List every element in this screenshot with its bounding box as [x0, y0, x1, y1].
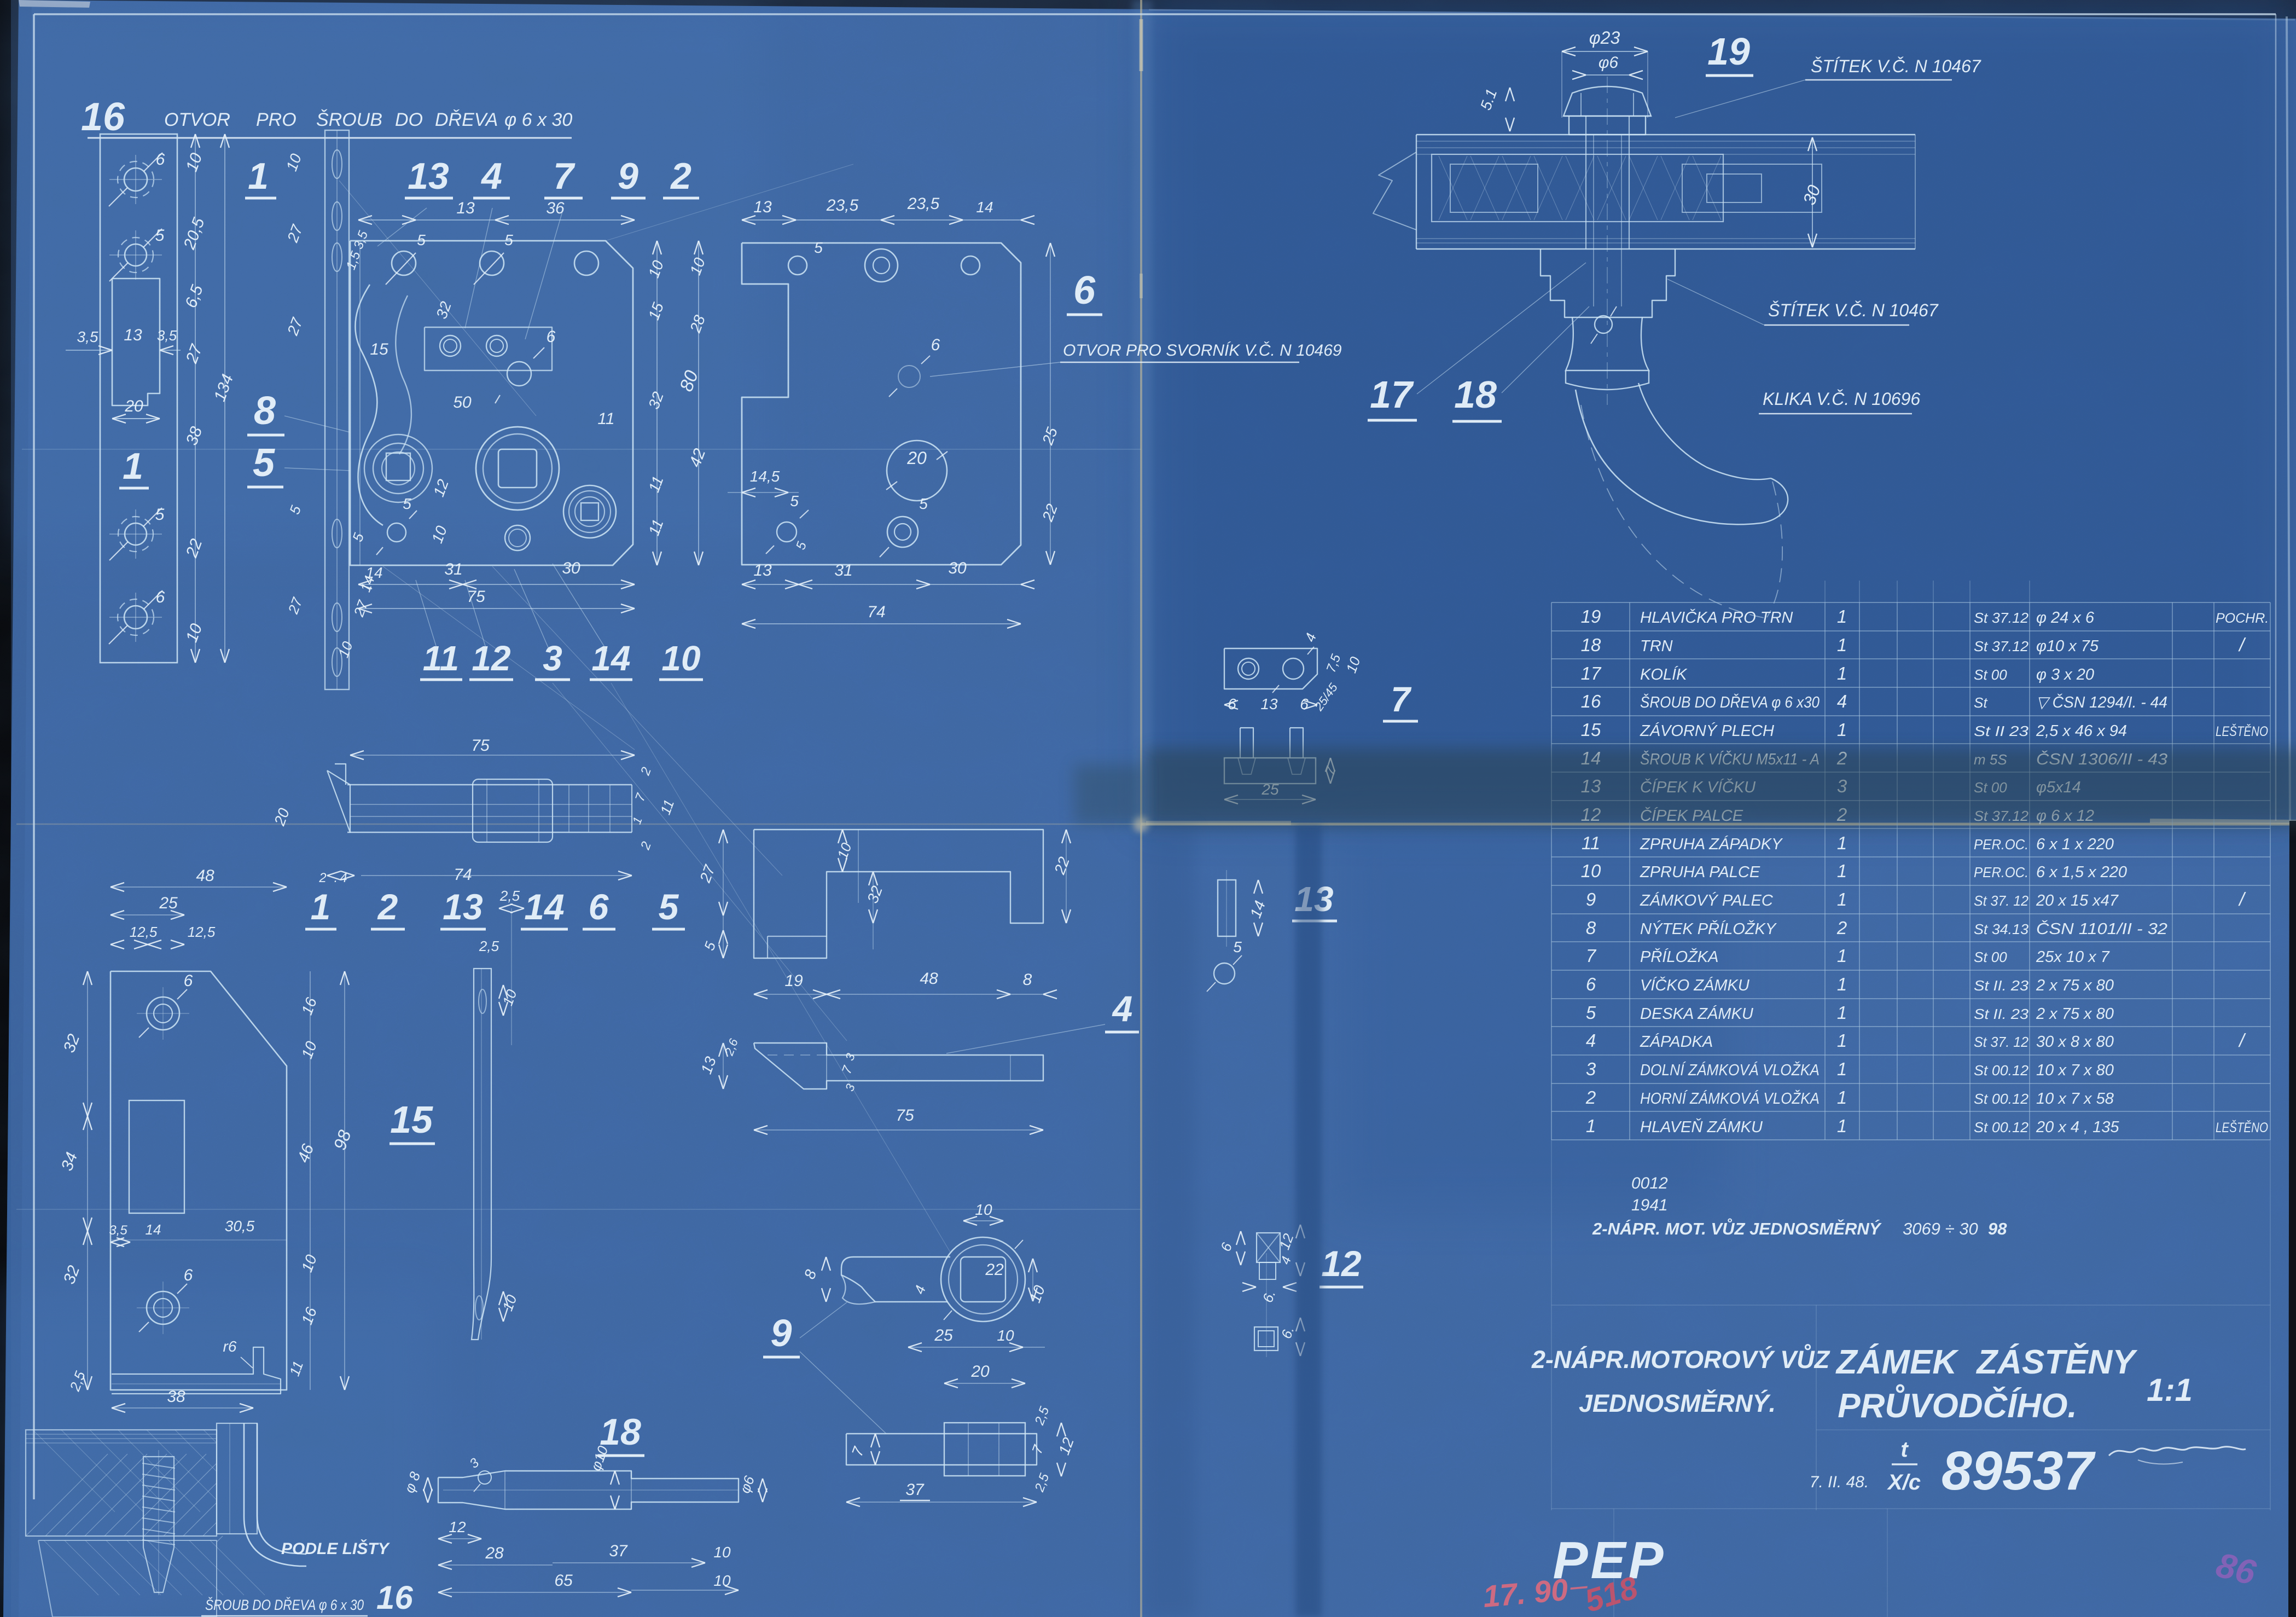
svg-text:6: 6	[156, 150, 165, 169]
svg-text:25: 25	[934, 1326, 953, 1344]
svg-text:2: 2	[1836, 918, 1847, 938]
svg-text:17: 17	[1581, 663, 1602, 683]
svg-text:37: 37	[609, 1542, 628, 1560]
svg-text:φ 6 x 30: φ 6 x 30	[504, 109, 572, 130]
svg-text:4: 4	[480, 155, 502, 197]
svg-text:20: 20	[970, 1363, 990, 1381]
svg-text:DŘEVA: DŘEVA	[435, 109, 498, 130]
svg-text:37: 37	[905, 1481, 925, 1499]
svg-text:St II. 23: St II. 23	[1974, 977, 2029, 994]
svg-text:12: 12	[449, 1519, 466, 1535]
svg-text:10: 10	[713, 1544, 731, 1561]
svg-text:St 34.13: St 34.13	[1974, 921, 2029, 937]
svg-text:2: 2	[1585, 1087, 1596, 1108]
svg-text:30: 30	[562, 559, 580, 577]
svg-text:1: 1	[1837, 1002, 1847, 1023]
svg-text:14: 14	[524, 886, 564, 927]
svg-text:2,5: 2,5	[499, 888, 520, 904]
svg-text:5: 5	[1233, 938, 1242, 955]
svg-text:5: 5	[403, 495, 411, 512]
svg-text:t: t	[1900, 1438, 1909, 1462]
svg-text:5: 5	[504, 231, 513, 248]
svg-text:φ 24 x 6: φ 24 x 6	[2036, 609, 2095, 627]
svg-text:3,5: 3,5	[157, 327, 177, 344]
svg-text:10 x 7 x 58: 10 x 7 x 58	[2036, 1090, 2114, 1108]
svg-text:5: 5	[155, 506, 165, 524]
svg-text:1: 1	[311, 886, 331, 927]
svg-text:2-NÁPR.MOTOROVÝ VŮZ: 2-NÁPR.MOTOROVÝ VŮZ	[1531, 1344, 1830, 1373]
svg-text:8: 8	[1023, 971, 1032, 989]
svg-text:6: 6	[589, 886, 609, 927]
svg-text:5: 5	[253, 441, 275, 485]
svg-text:18: 18	[1581, 635, 1601, 655]
svg-text:St II 23: St II 23	[1974, 723, 2029, 739]
svg-text:18: 18	[1454, 373, 1497, 416]
svg-text:4: 4	[1586, 1030, 1596, 1051]
svg-text:9: 9	[1586, 889, 1596, 909]
svg-text:1941: 1941	[1631, 1196, 1668, 1214]
svg-text:8: 8	[1586, 918, 1596, 938]
svg-text:1: 1	[1837, 635, 1847, 655]
svg-text:5: 5	[659, 886, 679, 927]
svg-text:7. II. 48.: 7. II. 48.	[1810, 1473, 1869, 1491]
svg-text:1: 1	[1837, 1087, 1847, 1108]
svg-text:5: 5	[155, 227, 165, 245]
svg-text:2: 2	[377, 886, 398, 927]
svg-text:25: 25	[159, 894, 178, 912]
svg-text:3069 ÷ 30: 3069 ÷ 30	[1903, 1219, 1978, 1238]
svg-text:19: 19	[1707, 30, 1750, 73]
svg-text:38: 38	[167, 1388, 185, 1406]
svg-text:10: 10	[997, 1327, 1014, 1344]
svg-text:50: 50	[453, 393, 472, 412]
svg-text:1: 1	[1837, 720, 1847, 740]
svg-text:St 00.12: St 00.12	[1974, 1119, 2029, 1135]
svg-text:18: 18	[600, 1411, 641, 1453]
svg-text:13: 13	[456, 199, 475, 217]
svg-text:ZÁPADKA: ZÁPADKA	[1640, 1033, 1713, 1051]
svg-text:12,5: 12,5	[130, 924, 158, 940]
svg-text:98: 98	[1988, 1219, 2007, 1238]
svg-text:VÍČKO ZÁMKU: VÍČKO ZÁMKU	[1640, 976, 1750, 994]
svg-text:31: 31	[834, 561, 852, 579]
svg-text:PER.OC.: PER.OC.	[1974, 864, 2028, 880]
svg-text:1: 1	[1837, 1030, 1847, 1051]
svg-text:48: 48	[920, 970, 938, 988]
svg-text:65: 65	[554, 1572, 573, 1590]
svg-text:6: 6	[184, 1266, 193, 1284]
svg-text:2: 2	[318, 871, 326, 885]
svg-text:2: 2	[670, 155, 691, 197]
svg-text:11: 11	[1582, 833, 1600, 853]
svg-text:ZÁVORNÝ PLECH: ZÁVORNÝ PLECH	[1640, 722, 1774, 740]
svg-text:13: 13	[753, 561, 772, 579]
svg-text:ČSN 1101/II - 32: ČSN 1101/II - 32	[2036, 919, 2167, 938]
svg-text:St II. 23: St II. 23	[1974, 1006, 2029, 1022]
svg-text:1: 1	[1837, 606, 1847, 627]
svg-text:2 x 75 x 80: 2 x 75 x 80	[2036, 1005, 2114, 1023]
svg-text:6 x 1,5 x 220: 6 x 1,5 x 220	[2036, 863, 2127, 881]
svg-text:St 37.12: St 37.12	[1974, 638, 2029, 654]
svg-text:St 37. 12: St 37. 12	[1974, 892, 2029, 909]
svg-text:ZÁMEK: ZÁMEK	[1835, 1343, 1960, 1381]
svg-text:3: 3	[543, 639, 562, 678]
svg-text:TRN: TRN	[1640, 637, 1673, 655]
svg-text:22: 22	[985, 1261, 1004, 1279]
svg-text:15: 15	[370, 340, 388, 358]
svg-text:OTVOR PRO SVORNÍK V.Č. N 10469: OTVOR PRO SVORNÍK V.Č. N 10469	[1063, 341, 1342, 360]
svg-text:ZPRUHA ZÁPADKY: ZPRUHA ZÁPADKY	[1640, 835, 1783, 853]
svg-text:75: 75	[467, 588, 485, 606]
svg-text:15: 15	[390, 1098, 433, 1141]
svg-text:1: 1	[1837, 861, 1847, 881]
svg-text:2,5: 2,5	[479, 938, 499, 954]
svg-text:HORNÍ ZÁMKOVÁ VLOŽKA: HORNÍ ZÁMKOVÁ VLOŽKA	[1640, 1089, 1820, 1108]
svg-text:74: 74	[454, 866, 472, 884]
svg-text:ZPRUHA PALCE: ZPRUHA PALCE	[1640, 863, 1760, 881]
svg-text:PRŮVODČÍHO.: PRŮVODČÍHO.	[1838, 1385, 2077, 1425]
svg-text:5: 5	[814, 239, 823, 256]
svg-text:14,5: 14,5	[750, 468, 780, 485]
svg-text:OTVOR: OTVOR	[164, 109, 230, 130]
svg-text:LEŠTĚNO: LEŠTĚNO	[2216, 1120, 2268, 1135]
svg-text:DESKA ZÁMKU: DESKA ZÁMKU	[1640, 1005, 1754, 1023]
svg-text:10: 10	[975, 1201, 992, 1218]
svg-text:13: 13	[408, 155, 449, 197]
svg-text:LEŠTĚNO: LEŠTĚNO	[2216, 723, 2268, 739]
svg-text:75: 75	[471, 737, 490, 755]
svg-text:X/c: X/c	[1887, 1470, 1921, 1494]
svg-text:▽ ČSN 1294/I. - 44: ▽ ČSN 1294/I. - 44	[2036, 693, 2167, 711]
svg-text:28: 28	[485, 1544, 504, 1562]
svg-text:r6: r6	[223, 1338, 237, 1355]
svg-text:PER.OC.: PER.OC.	[1974, 836, 2028, 853]
svg-text:23,5: 23,5	[826, 196, 859, 215]
svg-text:12: 12	[472, 639, 510, 678]
svg-text:10 x 7 x 80: 10 x 7 x 80	[2036, 1062, 2114, 1079]
svg-text:74: 74	[867, 603, 885, 621]
svg-text:1:1: 1:1	[2147, 1372, 2193, 1408]
svg-text:16: 16	[81, 95, 125, 139]
svg-text:ŠTÍTEK V.Č. N 10467: ŠTÍTEK V.Č. N 10467	[1811, 56, 1981, 76]
svg-text:1: 1	[1837, 889, 1847, 909]
svg-text:HLAVEŇ ZÁMKU: HLAVEŇ ZÁMKU	[1640, 1118, 1763, 1136]
svg-text:St 00.12: St 00.12	[1974, 1091, 2029, 1107]
svg-text:PODLE LIŠTY: PODLE LIŠTY	[281, 1539, 391, 1558]
svg-text:23,5: 23,5	[907, 195, 940, 213]
svg-text:1: 1	[1837, 1059, 1847, 1079]
svg-text:30: 30	[948, 559, 967, 577]
svg-text:NÝTEK PŘÍLOŽKY: NÝTEK PŘÍLOŽKY	[1640, 920, 1777, 938]
svg-text:St 00: St 00	[1974, 949, 2007, 965]
svg-text:0012: 0012	[1631, 1174, 1668, 1192]
svg-text:31: 31	[444, 560, 462, 578]
svg-text:1: 1	[123, 445, 143, 487]
svg-text:PRO: PRO	[256, 109, 297, 130]
svg-text:19: 19	[1581, 606, 1601, 627]
svg-text:16: 16	[376, 1579, 413, 1616]
svg-text:11: 11	[423, 639, 459, 678]
svg-text:ŠROUB DO DŘEVA φ 6 x 30: ŠROUB DO DŘEVA φ 6 x 30	[205, 1596, 364, 1613]
svg-text:POCHR.: POCHR.	[2216, 611, 2269, 626]
svg-text:8: 8	[254, 389, 276, 433]
svg-text:10: 10	[661, 639, 700, 678]
svg-text:20: 20	[906, 448, 927, 468]
svg-text:9: 9	[618, 155, 638, 197]
svg-text:φ10 x 75: φ10 x 75	[2036, 637, 2099, 655]
svg-text:1: 1	[1586, 1116, 1596, 1136]
svg-text:St 00: St 00	[1974, 666, 2007, 683]
svg-text:7: 7	[553, 155, 576, 197]
svg-text:ŠROUB DO DŘEVA φ 6 x30: ŠROUB DO DŘEVA φ 6 x30	[1640, 693, 1820, 711]
svg-text:13: 13	[1260, 696, 1278, 712]
svg-text:75: 75	[896, 1106, 914, 1125]
svg-text:16: 16	[1581, 691, 1601, 711]
svg-text:6: 6	[1586, 974, 1596, 994]
svg-text:1: 1	[248, 155, 269, 197]
svg-text:9: 9	[771, 1312, 792, 1354]
svg-text:89537: 89537	[1942, 1440, 2096, 1502]
svg-text:1: 1	[1837, 833, 1847, 853]
svg-text:6: 6	[931, 336, 940, 354]
svg-text:6: 6	[1300, 696, 1309, 712]
svg-text:6: 6	[1073, 269, 1096, 312]
svg-text:1: 1	[1837, 946, 1847, 966]
svg-text:St: St	[1974, 694, 1988, 711]
svg-text:ZÁMKOVÝ PALEC: ZÁMKOVÝ PALEC	[1640, 891, 1774, 909]
svg-text:ŠROUB: ŠROUB	[316, 109, 382, 130]
svg-text:1: 1	[1837, 974, 1847, 994]
svg-text:φ 3 x 20: φ 3 x 20	[2036, 666, 2094, 683]
svg-text:17: 17	[1370, 373, 1414, 416]
svg-text:20 x 4 , 135: 20 x 4 , 135	[2036, 1118, 2119, 1136]
svg-text:3,5: 3,5	[109, 1223, 127, 1238]
svg-text:1: 1	[1837, 1116, 1847, 1136]
svg-text:DOLNÍ ZÁMKOVÁ VLOŽKA: DOLNÍ ZÁMKOVÁ VLOŽKA	[1640, 1061, 1820, 1079]
svg-text:14: 14	[976, 199, 993, 216]
svg-text:7: 7	[1391, 680, 1412, 719]
svg-text:JEDNOSMĚRNÝ.: JEDNOSMĚRNÝ.	[1579, 1389, 1776, 1417]
svg-text:6: 6	[184, 972, 193, 990]
svg-text:HLAVIČKA PRO TRN: HLAVIČKA PRO TRN	[1640, 608, 1793, 627]
svg-text:13: 13	[124, 326, 142, 344]
svg-text:30,5: 30,5	[225, 1218, 255, 1235]
svg-text:30 x 8 x 80: 30 x 8 x 80	[2036, 1033, 2114, 1051]
svg-text:ZÁSTĚNY: ZÁSTĚNY	[1975, 1343, 2138, 1381]
svg-text:14: 14	[591, 639, 630, 678]
svg-text:St 00.12: St 00.12	[1974, 1062, 2029, 1079]
svg-text:19: 19	[784, 972, 803, 990]
svg-text:5: 5	[919, 495, 928, 512]
svg-text:4: 4	[1837, 691, 1847, 711]
svg-text:3: 3	[1586, 1059, 1596, 1079]
svg-text:25x 10 x 7: 25x 10 x 7	[2036, 948, 2111, 966]
svg-text:14: 14	[146, 1221, 161, 1238]
svg-text:5: 5	[417, 231, 426, 248]
svg-text:3,5: 3,5	[77, 328, 98, 345]
svg-text:48: 48	[196, 867, 214, 885]
svg-text:12,5: 12,5	[188, 924, 216, 940]
svg-text:DO: DO	[395, 109, 423, 130]
svg-text:5: 5	[790, 492, 799, 509]
svg-text:1: 1	[1837, 663, 1847, 683]
svg-text:4: 4	[1112, 988, 1133, 1029]
svg-text:13: 13	[753, 198, 772, 216]
svg-text:13: 13	[443, 886, 483, 927]
svg-text:10: 10	[1581, 861, 1601, 881]
svg-text:20: 20	[124, 397, 143, 415]
svg-text:6: 6	[156, 588, 165, 606]
svg-text:PŘÍLOŽKA: PŘÍLOŽKA	[1640, 948, 1718, 966]
svg-text:2 x 75 x 80: 2 x 75 x 80	[2036, 977, 2114, 994]
svg-text:6: 6	[547, 328, 556, 346]
svg-text:11: 11	[597, 410, 614, 428]
svg-text:φ6: φ6	[1599, 54, 1619, 72]
svg-text:φ23: φ23	[1589, 28, 1620, 48]
svg-text:15: 15	[1581, 720, 1601, 740]
svg-text:20 x 15 x47: 20 x 15 x47	[2036, 892, 2119, 909]
svg-text:St 37.12: St 37.12	[1974, 610, 2029, 626]
svg-text:KOLÍK: KOLÍK	[1640, 665, 1688, 683]
svg-text:KLIKA V.Č. N 10696: KLIKA V.Č. N 10696	[1763, 389, 1920, 409]
svg-text:2,5 x 46 x 94: 2,5 x 46 x 94	[2036, 722, 2127, 740]
svg-text:5: 5	[1586, 1002, 1596, 1023]
svg-text:6 x 1 x 220: 6 x 1 x 220	[2036, 836, 2114, 853]
svg-text:7: 7	[1586, 946, 1597, 966]
svg-text:14: 14	[365, 564, 382, 581]
svg-text:12: 12	[1321, 1243, 1362, 1284]
svg-text:2-NÁPR. MOT. VŮZ JEDNOSMĚRNÝ: 2-NÁPR. MOT. VŮZ JEDNOSMĚRNÝ	[1592, 1218, 1882, 1238]
svg-text:ŠTÍTEK V.Č. N 10467: ŠTÍTEK V.Č. N 10467	[1768, 300, 1939, 320]
svg-text:St 37. 12: St 37. 12	[1974, 1034, 2029, 1050]
